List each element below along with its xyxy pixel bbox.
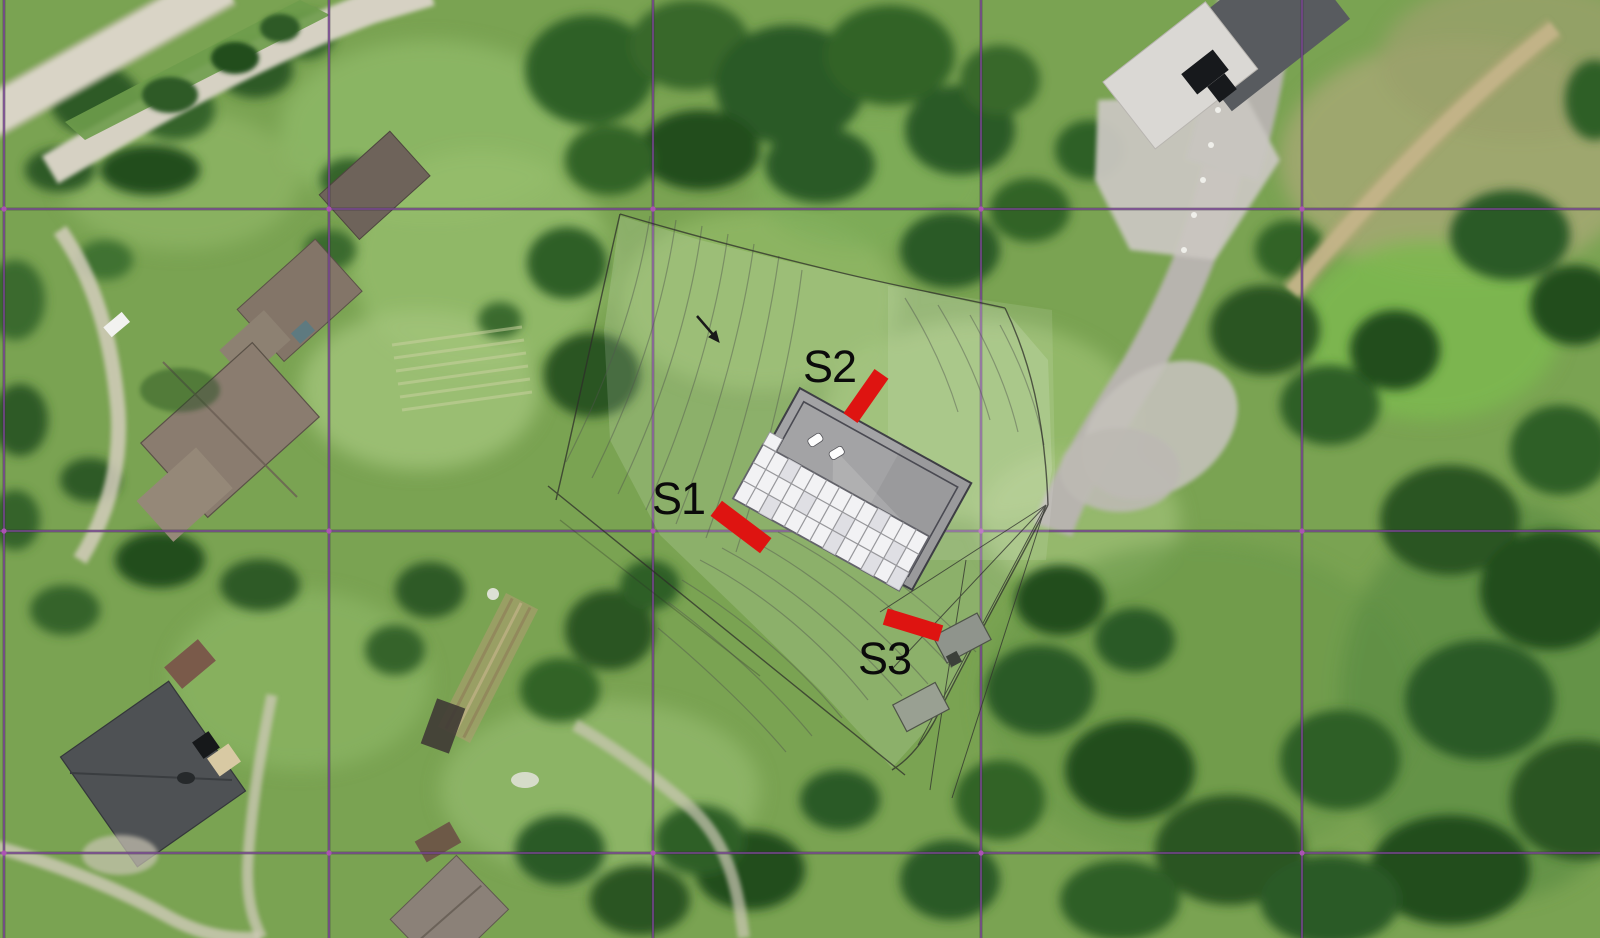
aerial-site-plan-screenshot: S1 S2 S3 <box>0 0 1600 938</box>
sample-label-s1: S1 <box>652 473 705 524</box>
sample-label-s3: S3 <box>858 633 911 684</box>
sample-label-s2: S2 <box>803 341 856 392</box>
orthophoto-map: S1 S2 S3 <box>0 0 1600 938</box>
